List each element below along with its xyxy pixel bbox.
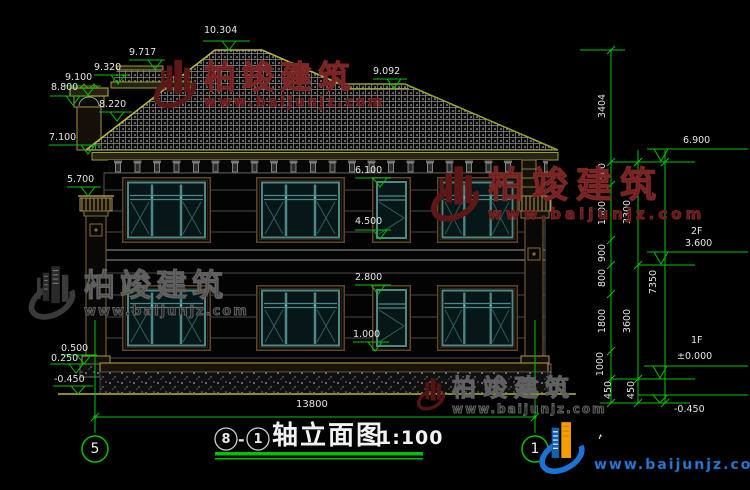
dim-800b: 800 xyxy=(597,258,609,298)
roof-right-wing xyxy=(340,84,558,150)
level-window-head-2f: 6.100 xyxy=(355,166,382,176)
level-window-sill-2f: 4.500 xyxy=(355,217,382,227)
level-window-head-1f: 2.800 xyxy=(355,273,382,283)
level-eave-right: 6.900 xyxy=(683,136,710,146)
dim-3600: 3600 xyxy=(622,301,634,341)
window-1f-2 xyxy=(257,286,345,351)
level-ground-right: -0.450 xyxy=(674,405,705,415)
dim-3404: 3404 xyxy=(597,86,609,126)
level-roof-surface: 8.220 xyxy=(99,100,126,110)
level-eave-left: 7.100 xyxy=(49,133,76,143)
cad-elevation-drawing: 10.304 9.717 9.320 9.100 8.800 8.220 7.1… xyxy=(0,0,750,490)
level-wing-ridge: 9.092 xyxy=(373,67,400,77)
window-2f-1 xyxy=(123,178,211,243)
plinth xyxy=(58,363,576,394)
dim-1800: 1800 xyxy=(597,301,609,341)
title-axis-start: 8 xyxy=(215,433,237,446)
axis-bubble-right: 1 xyxy=(524,442,546,456)
dim-3300: 3300 xyxy=(622,192,634,232)
level-ridge: 10.304 xyxy=(204,26,237,36)
label-floor2: 2F xyxy=(691,227,703,237)
title-underline-thick xyxy=(215,452,423,456)
window-2f-2 xyxy=(257,178,345,243)
level-floor2: 3.600 xyxy=(685,239,712,249)
title-separator: - xyxy=(238,432,245,448)
level-ground-left: -0.450 xyxy=(54,375,85,385)
drawing-title: 轴立面图 xyxy=(272,423,384,449)
title-axis-end: 1 xyxy=(247,433,269,446)
drawing-scale: 1:100 xyxy=(378,429,443,448)
window-2f-3 xyxy=(373,178,411,243)
level-dormer-ridge: 9.717 xyxy=(129,48,156,58)
dim-800a: 800 xyxy=(597,152,609,192)
axis-bubble-left: 5 xyxy=(84,442,106,456)
window-1f-4 xyxy=(438,286,518,351)
window-1f-1 xyxy=(123,286,211,351)
level-window-sill-1f: 1.000 xyxy=(353,330,380,340)
level-coping-mid: 0.250 xyxy=(51,354,78,364)
window-1f-3 xyxy=(373,286,411,351)
level-floor1: ±0.000 xyxy=(677,352,712,362)
level-dormer-eave: 9.320 xyxy=(94,63,121,73)
level-chimney-cap: 8.800 xyxy=(51,83,78,93)
eaves-band xyxy=(86,150,558,173)
level-column-top: 5.700 xyxy=(67,175,94,185)
window-2f-4 xyxy=(438,178,518,243)
dim-total-width: 13800 xyxy=(296,400,328,410)
dim-450a: 450 xyxy=(603,370,615,410)
dim-450b: 450 xyxy=(626,370,638,410)
dim-7350: 7350 xyxy=(648,262,660,302)
dim-1600: 1600 xyxy=(597,193,609,233)
title-underline-thin xyxy=(215,458,423,460)
building-linework xyxy=(58,50,576,394)
label-floor1: 1F xyxy=(691,336,703,346)
